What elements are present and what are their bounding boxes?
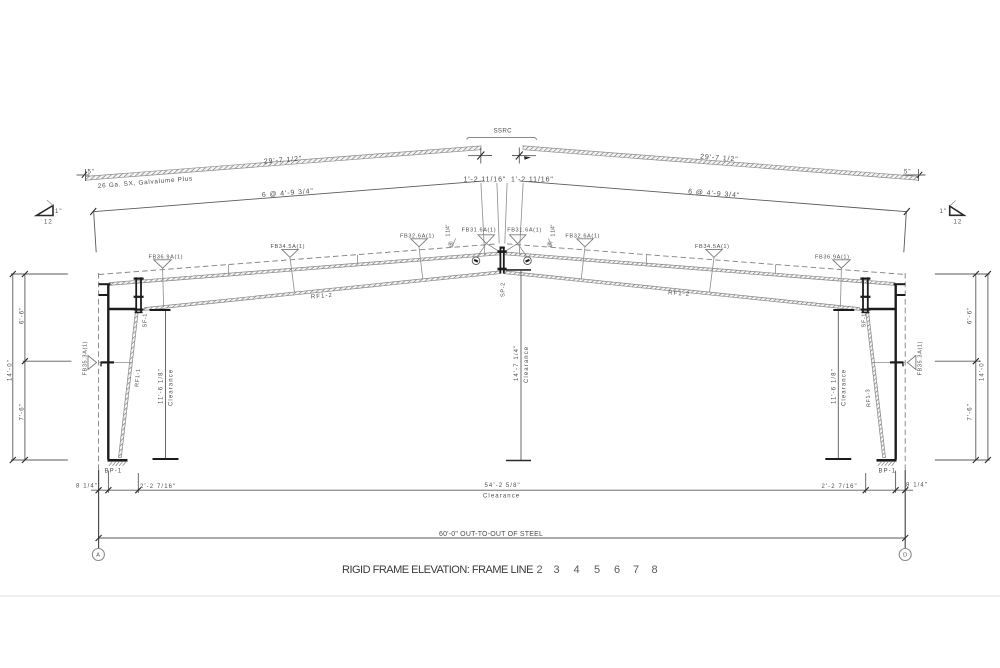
svg-text:7'-6": 7'-6"	[20, 403, 26, 420]
svg-text:6'-6": 6'-6"	[20, 307, 26, 324]
svg-text:12: 12	[954, 220, 963, 226]
svg-text:5": 5"	[88, 170, 96, 176]
svg-text:7'-6": 7'-6"	[968, 403, 974, 420]
svg-text:5": 5"	[904, 170, 912, 176]
svg-text:1": 1"	[55, 209, 63, 215]
svg-text:8 1/4": 8 1/4"	[76, 484, 98, 490]
svg-text:12: 12	[44, 220, 53, 226]
svg-text:11'-6 1/8": 11'-6 1/8"	[159, 368, 165, 404]
svg-text:8 1/4": 8 1/4"	[906, 483, 928, 489]
svg-text:FB31.6A(1): FB31.6A(1)	[507, 227, 542, 233]
svg-text:Clearance: Clearance	[169, 369, 175, 406]
svg-text:1 1/4": 1 1/4"	[446, 224, 452, 236]
svg-text:11'-6 1/8": 11'-6 1/8"	[831, 368, 837, 404]
svg-text:14'-0": 14'-0"	[980, 359, 986, 381]
svg-text:1'-2 11/16": 1'-2 11/16"	[464, 177, 507, 184]
svg-text:SP-2: SP-2	[501, 282, 507, 297]
svg-text:2'-2 7/16": 2'-2 7/16"	[822, 484, 858, 490]
svg-text:BP-1: BP-1	[105, 469, 123, 475]
svg-text:Clearance: Clearance	[483, 494, 520, 500]
svg-text:1": 1"	[940, 209, 948, 215]
svg-text:SF-1: SF-1	[862, 313, 868, 328]
svg-text:14'-0": 14'-0"	[8, 359, 14, 381]
svg-text:SF-1: SF-1	[143, 313, 149, 328]
svg-text:RIGID FRAME ELEVATION: FRAME L: RIGID FRAME ELEVATION: FRAME LINE	[342, 564, 533, 576]
svg-text:2'-2 7/16": 2'-2 7/16"	[140, 484, 176, 490]
svg-text:14'-7 1/4": 14'-7 1/4"	[514, 345, 520, 381]
svg-text:D: D	[903, 553, 907, 559]
svg-text:Clearance: Clearance	[841, 369, 847, 406]
svg-text:1'-2 11/16": 1'-2 11/16"	[511, 177, 554, 184]
svg-text:1 1/4": 1 1/4"	[551, 224, 557, 236]
svg-text:SSRC: SSRC	[494, 128, 513, 135]
svg-text:FB35.3A(1): FB35.3A(1)	[918, 341, 924, 376]
svg-text:A: A	[96, 553, 100, 559]
svg-text:54'-2 5/8": 54'-2 5/8"	[485, 483, 521, 489]
svg-text:Clearance: Clearance	[524, 346, 530, 383]
svg-text:BP-1: BP-1	[879, 469, 897, 475]
svg-text:6'-6": 6'-6"	[968, 307, 974, 324]
svg-text:FB31.6A(1): FB31.6A(1)	[462, 227, 497, 233]
svg-text:60'-0" OUT-TO-OUT OF STEEL: 60'-0" OUT-TO-OUT OF STEEL	[439, 531, 543, 538]
